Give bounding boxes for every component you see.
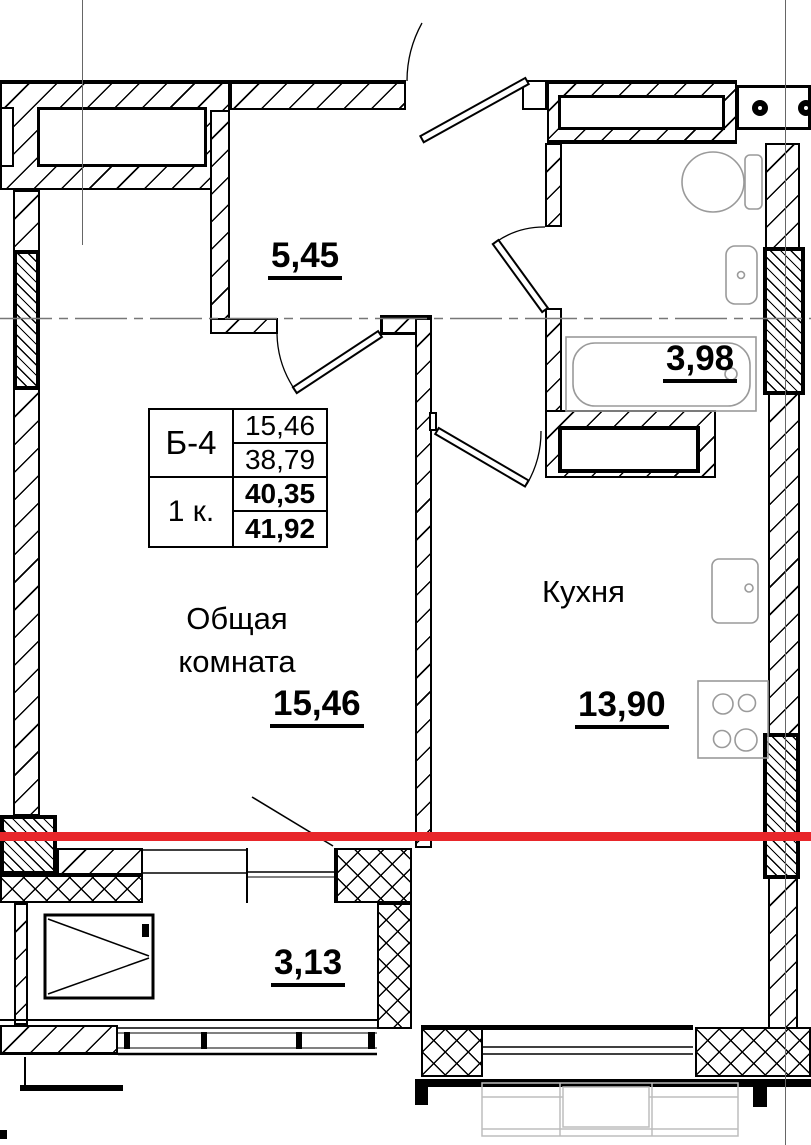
bath-door-arc: [496, 227, 545, 242]
unit-value-3: 40,35: [234, 478, 326, 512]
bath-area-label: 3,98: [663, 341, 737, 383]
living-area-label: 15,46: [270, 686, 364, 728]
entrance-door-leaf: [420, 78, 528, 142]
section-cut-line: [0, 832, 811, 841]
entrance-door-arc: [407, 23, 422, 81]
kitchen-window-frame: [483, 1047, 693, 1054]
unit-spec-table: Б-4 15,46 38,79 1 к. 40,35 41,92: [148, 408, 328, 548]
stove-icon: [698, 681, 768, 758]
linework-layer: [0, 0, 811, 1145]
bath-door-leaf: [493, 240, 548, 312]
living-door-arc: [277, 334, 295, 390]
toilet-icon: [682, 152, 762, 212]
bath-sink-icon: [726, 246, 757, 304]
kitchen-name: Кухня: [542, 574, 625, 610]
floor-plan: Б-4 15,46 38,79 1 к. 40,35 41,92 5,45 3,…: [0, 0, 811, 1145]
kitchen-door-leaf: [435, 428, 528, 487]
vent-holes: [752, 100, 811, 116]
balcony-area-label: 3,13: [271, 945, 345, 987]
unit-value-4: 41,92: [234, 512, 326, 546]
unit-type: 1 к.: [150, 478, 234, 546]
kitchen-area-label: 13,90: [575, 687, 669, 729]
unit-value-2: 38,79: [234, 444, 326, 478]
unit-value-1: 15,46: [234, 410, 326, 444]
balcony-casement-symbol: [45, 915, 153, 998]
lower-balcony-faint: [482, 1083, 738, 1136]
unit-id: Б-4: [150, 410, 234, 478]
living-room-name: Общая комната: [148, 598, 326, 684]
balcony-railing: [0, 1020, 377, 1054]
living-door-leaf: [293, 331, 382, 393]
kitchen-door-arc: [527, 431, 541, 484]
hall-area-label: 5,45: [268, 238, 342, 280]
kitchen-sink-icon: [712, 559, 758, 623]
